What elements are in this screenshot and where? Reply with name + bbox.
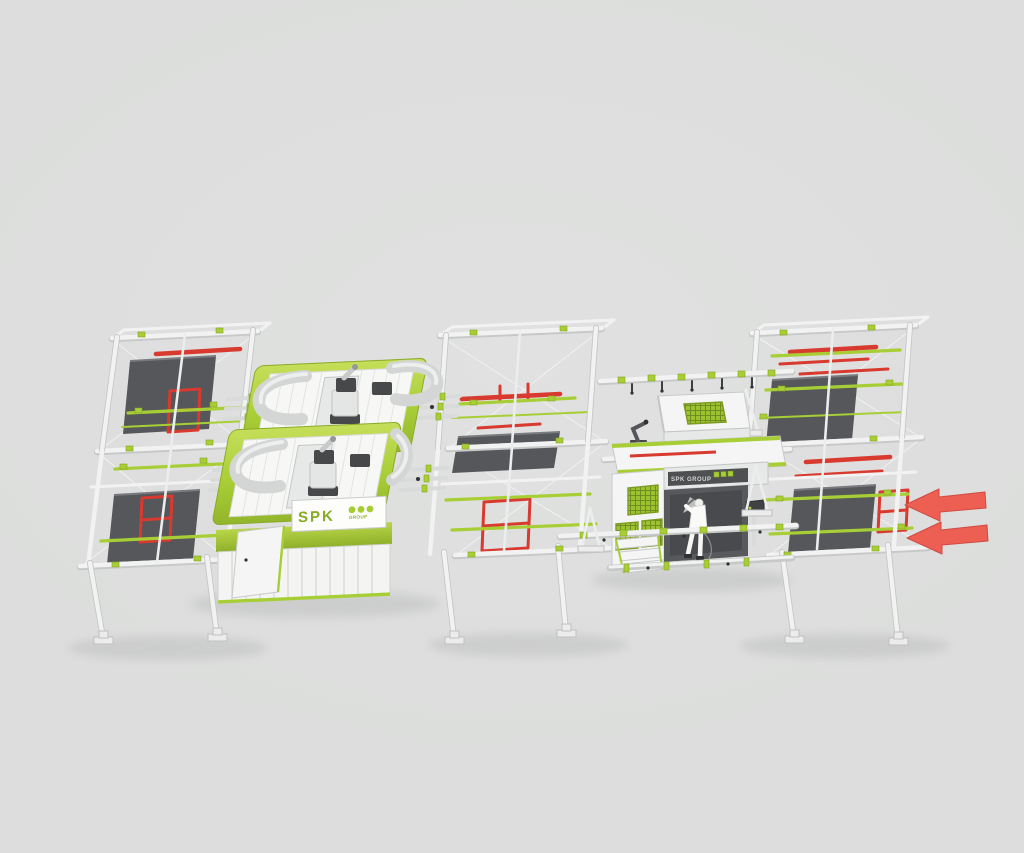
paint-booth-lower: SPK GROUP: [212, 422, 407, 602]
floor-shadows: [68, 568, 950, 660]
control-panel: [746, 500, 764, 546]
right-conveyor-gantry: [741, 317, 928, 645]
base-plate: [557, 624, 576, 637]
base-plate: [208, 628, 227, 641]
dark-screen-panel: [107, 490, 200, 564]
support-legs: [444, 546, 576, 644]
red-carrier-bar: [462, 384, 560, 428]
base-plate: [94, 631, 113, 644]
flow-arrow-1: [905, 489, 986, 521]
filter-grid-icon: [684, 402, 726, 424]
booth-logo-plate: SPK GROUP: [292, 496, 386, 531]
booth-logo-subtext: GROUP: [349, 514, 368, 520]
flow-direction-arrows: [905, 489, 988, 554]
red-carrier-bar: [156, 349, 240, 354]
base-plate: [445, 631, 464, 644]
booth-logo-dots-icon: [349, 505, 374, 513]
base-plate: [889, 632, 908, 645]
filter-grid-icon: [628, 485, 658, 515]
painting-line-illustration: SPK GROUP: [0, 0, 1024, 853]
base-plate: [785, 630, 804, 643]
station-label-text: SPK GROUP: [671, 477, 712, 483]
render-stage: SPK GROUP: [0, 0, 1024, 853]
station-label-squares-icon: [714, 471, 733, 477]
dark-screen-panel: [452, 432, 560, 473]
overhead-transfer-beam-upper: [600, 370, 792, 395]
open-service-door: [232, 526, 284, 598]
booth-logo-text: SPK: [298, 508, 335, 527]
support-legs: [782, 545, 908, 645]
manual-spray-station: SPK GROUP: [612, 436, 786, 573]
